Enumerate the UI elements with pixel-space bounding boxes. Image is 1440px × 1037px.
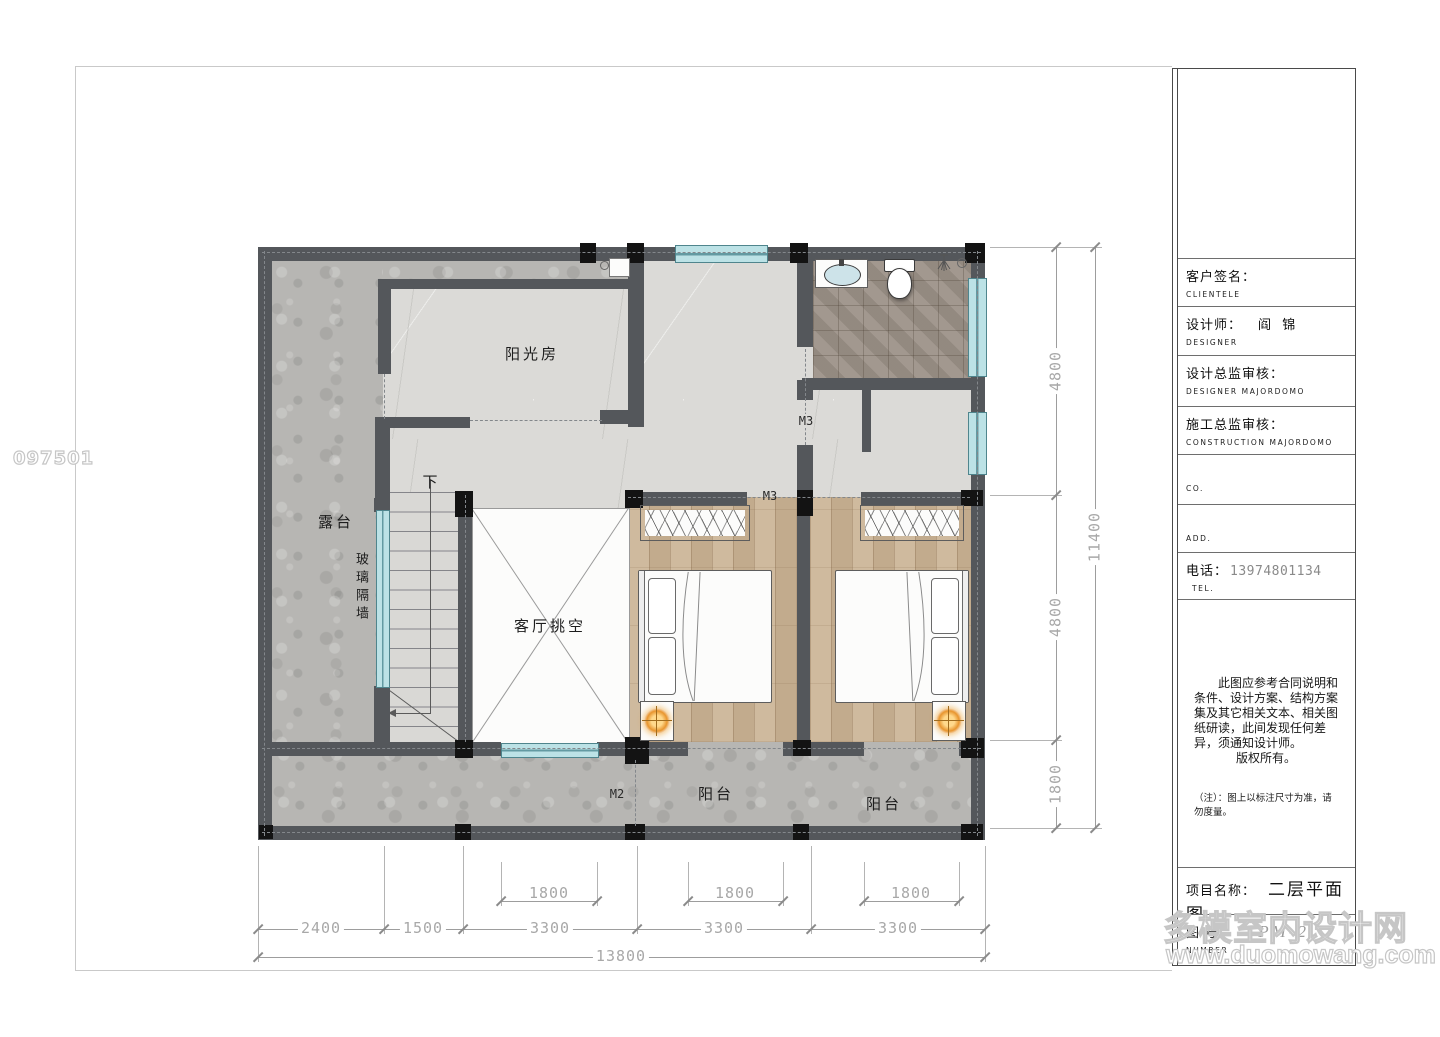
measure-note: （注）：图上以标注尺寸为准，请勿度量。 [1194, 790, 1341, 818]
dim-extension-line [637, 846, 638, 934]
room-label-glass-wall: 玻璃隔墙 [352, 552, 371, 624]
column [455, 740, 473, 758]
room-label-balcony-left: 阳台 [698, 783, 734, 804]
wall-centerline [470, 420, 602, 421]
dim-extension-line [990, 828, 1102, 829]
room-label-sunroom: 阳光房 [505, 343, 559, 364]
wall [862, 388, 871, 452]
dim-extension-line [384, 846, 385, 934]
dim-seg-2: 1500 [400, 921, 446, 936]
client-label: 客户签名： [1186, 269, 1256, 284]
column [790, 243, 808, 263]
designer-label: 设计师： [1186, 317, 1242, 332]
tb-row-co: CO. [1178, 455, 1355, 505]
room-label-terrace: 露台 [318, 511, 354, 532]
floor-drain [600, 261, 609, 270]
tel-label: 电话： [1186, 563, 1228, 578]
tb-row-design-majordomo: 设计总监审核： DESIGNER MAJORDOMO [1178, 356, 1355, 407]
entry-door-leaf [609, 258, 630, 277]
floor-drain [957, 258, 967, 268]
door-label-m2: M2 [610, 787, 624, 801]
bed [638, 570, 772, 703]
dim-seg-4: 3300 [701, 921, 747, 936]
glass-partition [376, 510, 390, 688]
sink-counter [815, 259, 868, 288]
wall-centerline [628, 497, 970, 498]
wall [258, 826, 985, 840]
wardrobe [640, 505, 750, 541]
column [961, 490, 983, 506]
column [455, 491, 473, 517]
dim-total-height: 11400 [1088, 509, 1103, 565]
wall [378, 279, 391, 374]
dim-right-3: 1800 [1049, 761, 1064, 807]
copyright-note: 版权所有。 [1194, 751, 1341, 766]
tb-row-notes: 此图应参考合同说明和条件、设计方案、结构方案集及其它相关文本、相关图纸研读，此间… [1178, 600, 1355, 868]
tel-value: 13974801134 [1230, 564, 1322, 579]
tb-row-designer: 设计师：阎 锦 DESIGNER [1178, 307, 1355, 356]
dim-seg-5: 3300 [875, 921, 921, 936]
title-block: 客户签名： CLIENTELE 设计师：阎 锦 DESIGNER 设计总监审核：… [1172, 68, 1356, 966]
blanket-fold [836, 571, 968, 702]
wall-centerline [262, 748, 981, 749]
wardrobe [860, 505, 964, 541]
paper-edge-left [75, 66, 76, 970]
dim-opening-2: 1800 [712, 886, 758, 901]
stair-direction-line [430, 480, 431, 713]
tb-row-construction-majordomo: 施工总监审核： CONSTRUCTION MAJORDOMO [1178, 407, 1355, 455]
wall-centerline [262, 252, 981, 253]
terrace-floor [270, 259, 383, 742]
wall-centerline [384, 374, 385, 419]
wall [797, 497, 810, 745]
stair-direction-line [395, 713, 431, 714]
designer-value: 阎 锦 [1258, 317, 1299, 332]
bed [835, 570, 969, 703]
wall-centerline [635, 760, 636, 826]
window [675, 245, 768, 263]
lamp-icon [644, 708, 670, 734]
paper-edge-top [75, 66, 1172, 67]
wall-centerline [805, 349, 806, 445]
dim-seg-1: 2400 [298, 921, 344, 936]
sink-basin [824, 264, 861, 286]
contract-note: 此图应参考合同说明和条件、设计方案、结构方案集及其它相关文本、相关图纸研读，此间… [1194, 676, 1341, 751]
tb-row-add: ADD. [1178, 505, 1355, 553]
dim-extension-line [990, 247, 1102, 248]
wall-centerline [264, 251, 265, 836]
dim-extension-line [258, 846, 259, 962]
column [965, 243, 985, 263]
wall-centerline [262, 832, 981, 833]
dim-extension-line [811, 846, 812, 934]
dim-opening-3: 1800 [888, 886, 934, 901]
dim-right-1: 4800 [1049, 348, 1064, 394]
wall-centerline [977, 251, 978, 836]
wall [861, 492, 970, 505]
tb-row-tel: 电话：13974801134 TEL. [1178, 553, 1355, 600]
dim-seg-3: 3300 [527, 921, 573, 936]
dim-opening-1: 1800 [526, 886, 572, 901]
blanket-fold [639, 571, 771, 702]
project-label: 项目名称： [1186, 883, 1256, 898]
stairs-down-label: 下 [422, 471, 437, 492]
wall [802, 378, 973, 390]
dim-right-2: 4800 [1049, 594, 1064, 640]
dim-extension-line [463, 846, 464, 934]
designer-sub: DESIGNER [1186, 338, 1349, 347]
dim-extension-line [990, 495, 1062, 496]
lamp-icon [936, 708, 962, 734]
sheet-code: 097501 [13, 448, 94, 469]
tb-row-client: 客户签名： CLIENTELE [1178, 259, 1355, 307]
toilet [884, 259, 915, 300]
room-label-balcony-right: 阳台 [866, 793, 902, 814]
wall [374, 686, 390, 744]
dim-extension-line [990, 740, 1062, 741]
title-block-blank-box [1178, 69, 1355, 259]
wall [378, 279, 630, 289]
door-label-m3: M3 [763, 489, 777, 503]
wall [600, 410, 630, 424]
dim-total-width: 13800 [593, 949, 649, 964]
door-label-m3: M3 [799, 414, 813, 428]
watermark-site-url: www.duomowang.com [1166, 941, 1436, 970]
shower-icon [933, 252, 955, 274]
wall-centerline [465, 495, 466, 742]
window [501, 743, 599, 758]
drawing-sheet: 097501 [0, 0, 1440, 1037]
column [625, 737, 649, 764]
room-label-living-void: 客厅挑空 [514, 615, 586, 636]
column [797, 490, 813, 516]
paper-edge-bottom [75, 970, 1172, 971]
client-sub: CLIENTELE [1186, 290, 1349, 299]
sink-faucet [839, 259, 844, 266]
wall [628, 247, 644, 427]
column [580, 243, 596, 263]
wall [628, 492, 747, 505]
dim-extension-line [985, 846, 986, 962]
